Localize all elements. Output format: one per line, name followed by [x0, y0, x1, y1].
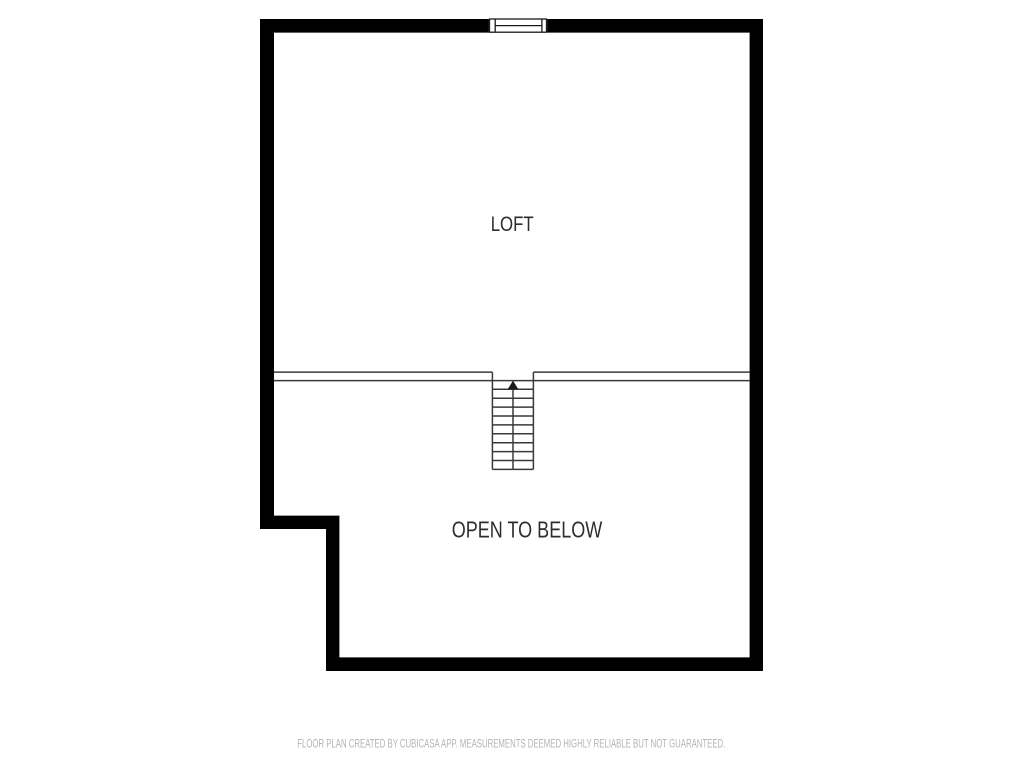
svg-text:OPEN TO BELOW: OPEN TO BELOW	[452, 517, 603, 543]
svg-text:FLOOR PLAN CREATED BY CUBICASA: FLOOR PLAN CREATED BY CUBICASA APP. MEAS…	[297, 738, 725, 750]
svg-text:LOFT: LOFT	[491, 213, 534, 236]
